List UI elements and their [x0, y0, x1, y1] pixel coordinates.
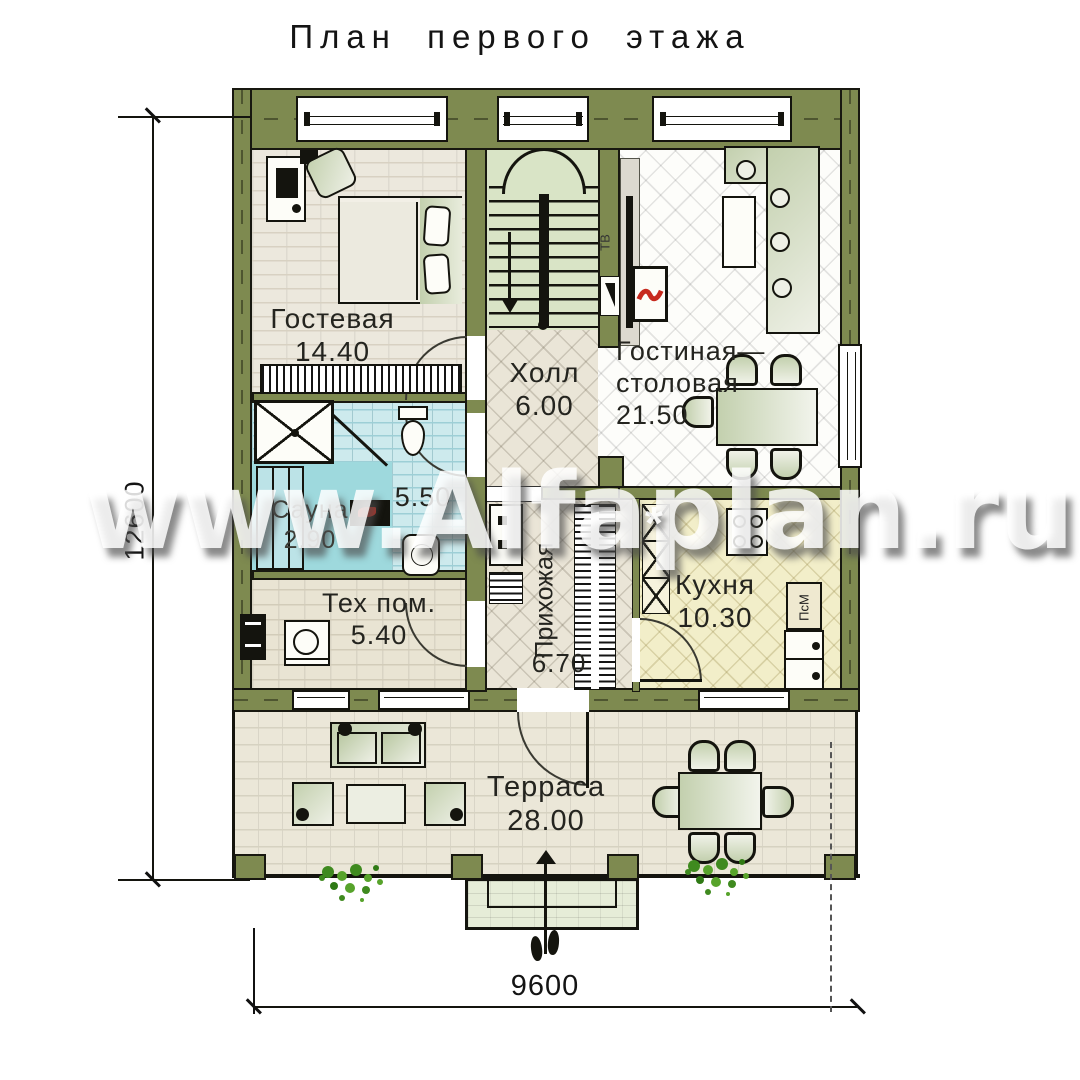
armrest-dot — [296, 808, 309, 821]
window-cap — [778, 112, 784, 126]
window-south-kitchen — [698, 690, 790, 710]
terrace-label: Терраса 28.00 — [466, 770, 626, 838]
vent-slit — [245, 644, 261, 647]
terrace-chair — [724, 740, 756, 772]
terrace-armchair — [424, 782, 466, 826]
glazing — [847, 352, 856, 460]
armrest-dot — [408, 722, 422, 736]
watermark-asterisk: * — [645, 496, 663, 550]
hall-label: Холл 6.00 — [497, 356, 592, 422]
glazing — [297, 697, 346, 702]
floor-plan-page: План первого этажа — [0, 0, 1080, 1080]
extension-line — [253, 928, 255, 1014]
window-cap — [304, 112, 310, 126]
room-area: 5.40 — [294, 620, 464, 652]
extension-line — [118, 116, 250, 118]
glazing — [704, 697, 783, 702]
stair-newel-dot — [538, 320, 548, 330]
entry-hall-area: 6.70 — [522, 648, 596, 679]
terrace-side-west — [232, 710, 235, 878]
porch-step — [487, 878, 617, 908]
room-area: 28.00 — [466, 804, 626, 838]
terrace-post — [824, 854, 856, 880]
room-name: Тех пом. — [294, 588, 464, 620]
plant-icon — [322, 866, 334, 878]
flame-icon — [636, 285, 664, 305]
terrace-chair — [762, 786, 794, 818]
sofa-cushion — [337, 732, 377, 764]
desk-item — [292, 204, 301, 213]
page-title: План первого этажа — [90, 18, 950, 56]
tech-wall-unit — [240, 614, 266, 660]
boiler-line — [286, 658, 328, 660]
window-south-2 — [378, 690, 470, 710]
terrace-chair — [724, 832, 756, 864]
tv-label: ТВ — [598, 223, 613, 263]
sofa-cushion — [381, 732, 421, 764]
terrace-sofa — [330, 722, 426, 768]
terrace-dining-table — [678, 772, 762, 830]
armrest-dot — [450, 808, 463, 821]
terrace-post — [234, 854, 266, 880]
sofa-pillow — [772, 278, 792, 298]
bed — [338, 196, 462, 304]
terrace-armchair — [292, 782, 334, 826]
room-area: 14.40 — [250, 335, 415, 368]
window-north-1 — [296, 96, 448, 142]
dishwasher-label: ПсМ — [797, 588, 812, 628]
room-name: Гостиная— — [616, 336, 776, 368]
stair-stringer — [539, 186, 549, 328]
sofa-pillow — [770, 232, 790, 252]
bed-blanket — [340, 202, 418, 300]
room-name: Холл — [497, 356, 592, 389]
stair-arrow-icon — [501, 298, 519, 313]
vent-slit — [245, 622, 261, 625]
tech-door-opening — [467, 601, 485, 667]
terrace-post — [607, 854, 639, 880]
shower-drain — [291, 429, 299, 437]
plant-icon — [688, 860, 700, 872]
dimension-line-bottom — [253, 1006, 857, 1008]
watermark: www.Alfaplan.ru — [84, 450, 1024, 573]
computer-icon — [276, 168, 298, 198]
entry-bench — [489, 572, 523, 604]
dimension-width: 9600 — [480, 970, 610, 1003]
electric-panel-icon — [605, 283, 615, 307]
armrest-dot — [338, 722, 352, 736]
window-cap — [504, 112, 510, 126]
axis-line-dashed — [830, 742, 832, 1012]
footprint-icon — [547, 930, 560, 956]
room-area: 10.30 — [656, 601, 774, 634]
guest-door-opening — [467, 336, 485, 400]
terrace-coffee-table — [346, 784, 406, 824]
terrace-post — [451, 854, 483, 880]
sink-divider — [786, 658, 822, 660]
window-cap — [660, 112, 666, 126]
kitchen-door-opening — [632, 618, 640, 682]
glazing — [305, 116, 438, 125]
room-area: 6.00 — [497, 389, 592, 422]
terrace-side-east — [855, 710, 858, 878]
radiator-symbol — [260, 364, 462, 394]
stair-direction-line — [508, 232, 511, 302]
glazing — [661, 116, 783, 125]
room-name: столовая — [616, 368, 776, 400]
living-room-label: Гостиная— столовая 21.50 — [616, 336, 776, 432]
pillow — [423, 253, 452, 295]
room-name: Гостевая — [250, 302, 415, 335]
faucet-dot — [812, 642, 820, 650]
extension-line — [118, 879, 250, 881]
kitchen-label: Кухня 10.30 — [656, 568, 774, 634]
guest-room-label: Гостевая 14.40 — [250, 302, 415, 368]
pillow — [423, 205, 452, 247]
entrance-axis-line — [544, 862, 547, 954]
wall-niche — [600, 276, 620, 316]
window-north-2 — [497, 96, 589, 142]
sofa-pillow — [770, 188, 790, 208]
faucet-dot — [812, 672, 820, 680]
tech-room-label: Тех пом. 5.40 — [294, 588, 464, 652]
room-area: 21.50 — [616, 400, 776, 432]
toilet-tank — [398, 406, 428, 420]
kitchen-sink — [784, 630, 824, 690]
dishwasher: ПсМ — [786, 582, 822, 630]
window-north-3 — [652, 96, 792, 142]
entrance-arrow-icon — [536, 850, 556, 864]
desk — [266, 156, 306, 222]
room-name: Терраса — [466, 770, 626, 804]
footprint-icon — [530, 935, 544, 961]
glazing — [503, 116, 582, 125]
sofa-pillow — [736, 160, 756, 180]
window-cap — [434, 112, 440, 126]
glazing — [384, 697, 463, 702]
entrance-door-opening — [517, 688, 589, 712]
window-cap — [576, 112, 582, 126]
fireplace — [632, 266, 668, 322]
coffee-table — [722, 196, 756, 268]
kitchen-door-leaf — [640, 679, 702, 682]
terrace-chair — [688, 740, 720, 772]
window-south-1 — [292, 690, 350, 710]
